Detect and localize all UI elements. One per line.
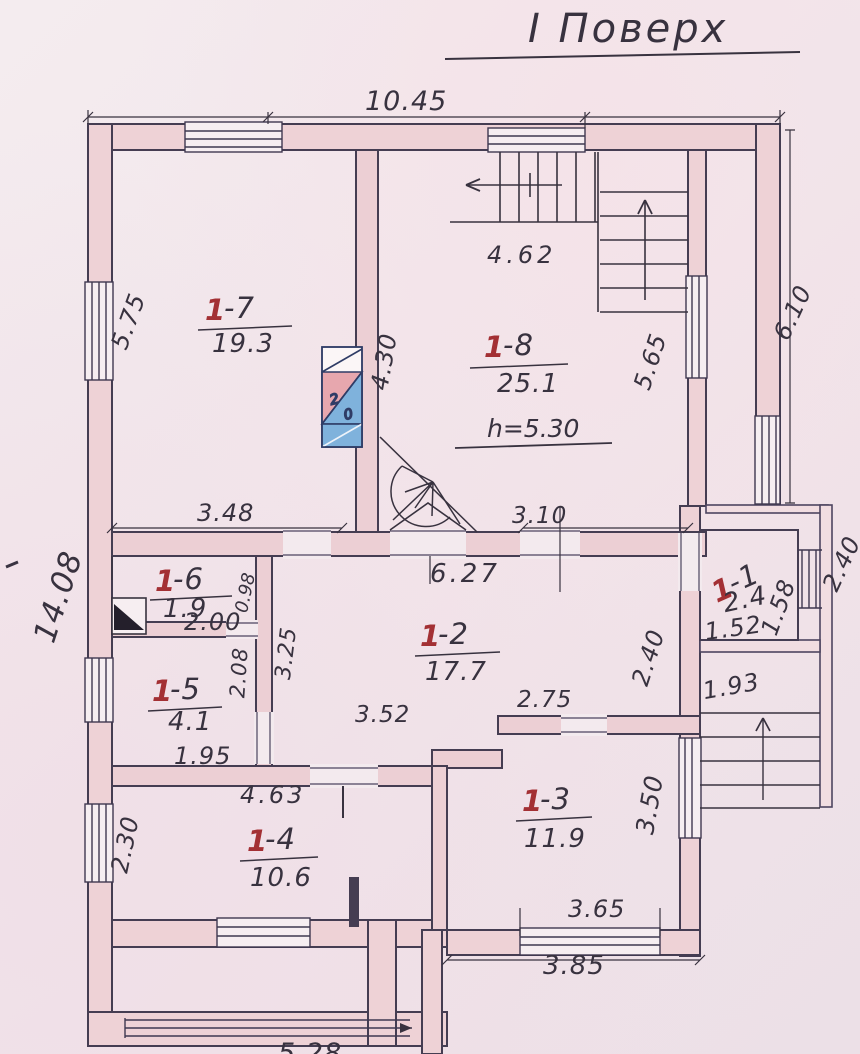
porch-steps (700, 713, 820, 808)
dim-room2-bottom: 3.52 (355, 702, 410, 728)
dim-bottom-right: 3.85 (543, 951, 605, 981)
dim-lobby-width: 1.93 (701, 668, 762, 706)
dim-mid-wall-left: 3.48 (197, 499, 254, 527)
stair-upper-flight (450, 152, 598, 222)
room-1-5-number: -5 (170, 672, 201, 706)
dim-room4-top: 4.63 (240, 781, 305, 809)
room-1-3-number: -3 (540, 782, 571, 816)
scanned-floor-plan: 2 0 І Поверх (0, 0, 860, 1054)
room-1-2-number: -2 (438, 617, 469, 651)
title-underline (445, 52, 800, 59)
window-left-2 (85, 658, 113, 722)
dim-corridor: 6.27 (430, 559, 500, 589)
room-1-4-area: 10.6 (250, 863, 312, 893)
window-top-right (488, 128, 585, 152)
floor-plan-drawing: 2 0 І Поверх (0, 0, 860, 1054)
room-1-5-area: 4.1 (168, 707, 212, 737)
room-1-8-area: 25.1 (497, 369, 559, 399)
dim-top-width: 10.45 (365, 86, 447, 117)
window-room8-right (686, 276, 707, 378)
scan-marks (6, 562, 18, 567)
room-1-8-number: -8 (503, 328, 534, 362)
window-top-left (185, 122, 282, 152)
dim-room8-right: 5.65 (628, 330, 672, 393)
dim-mid-wall-right: 3.10 (512, 503, 567, 529)
room-1-6-number: -6 (173, 562, 204, 596)
title-block: І Поверх (445, 6, 800, 59)
room-1-8-height-note: h=5.30 (487, 414, 579, 443)
dim-left-total: 14.08 (27, 547, 90, 647)
dim-room5-width: 1.95 (174, 742, 231, 770)
room-1-7-number-prefix: 1 (205, 293, 226, 327)
entrance-arrow (112, 598, 146, 634)
room-1-3-area: 11.9 (524, 824, 586, 854)
dim-bottom-window: 3.65 (568, 895, 625, 923)
room-1-2-area: 17.7 (425, 657, 487, 687)
window-bottom-left (217, 918, 310, 947)
room-1-7-number: -7 (224, 291, 255, 325)
page-title: І Поверх (528, 6, 728, 52)
window-gallery (755, 416, 780, 504)
dim-room3-top: 2.75 (517, 687, 572, 713)
dim-room3-right: 3.50 (630, 773, 669, 837)
window-left-1 (85, 282, 113, 380)
room-1-4-number: -4 (265, 822, 296, 856)
dim-partition: 3.25 (271, 625, 302, 681)
room-1-7-area: 19.3 (212, 329, 274, 359)
dim-room2-right: 2.40 (626, 626, 670, 689)
dim-bottom-partial: 5.28 (278, 1038, 342, 1054)
window-room3-right (679, 738, 701, 838)
dim-stair-flight: 4.62 (487, 241, 556, 269)
corner-stove-fan (380, 437, 477, 532)
room-1-8-number-prefix: 1 (484, 330, 505, 364)
dim-room5-depth: 2.08 (225, 646, 252, 698)
dim-room6-width: 2.00 (184, 608, 241, 636)
stove-symbol: 2 0 (322, 347, 362, 447)
stair-lower-flight (598, 152, 688, 312)
